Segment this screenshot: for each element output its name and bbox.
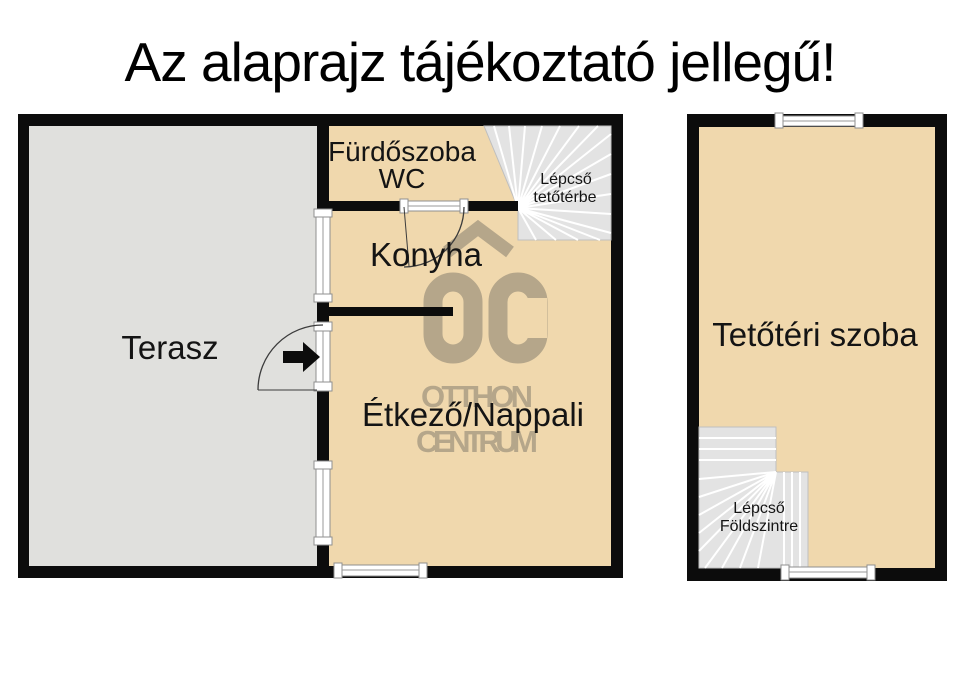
room-label-konyha: Konyha (370, 236, 483, 273)
kitchen-living-wall (329, 307, 453, 316)
attic-floor-plan: Tetőtéri szoba Lépcső Földszintre (687, 113, 947, 581)
bathroom-wall-left (329, 201, 403, 211)
stairs-ground-label-line1: Lépcső (733, 500, 785, 517)
stairs-ground-label-line2: Földszintre (720, 518, 798, 535)
bathroom-wall-right (466, 201, 518, 211)
room-label-wc: WC (379, 163, 426, 194)
ground-floor-plan: OTTHON CENTRUM (18, 114, 623, 578)
stairs-attic-label-line2: tetőtérbe (533, 189, 596, 206)
room-label-tetoteri-szoba: Tetőtéri szoba (712, 316, 918, 353)
floorplan-drawing: OTTHON CENTRUM (0, 0, 960, 679)
window-living-bottom (334, 563, 427, 578)
floorplan-page: Az alaprajz tájékoztató jellegű! OTTHON … (0, 0, 960, 679)
stairs-attic-label-line1: Lépcső (540, 171, 592, 188)
window-terrace-upper (314, 209, 332, 302)
window-attic-bottom (781, 565, 875, 580)
room-label-terasz: Terasz (121, 329, 218, 366)
room-label-etkezo-nappali: Étkező/Nappali (362, 396, 584, 433)
watermark-c-gap (519, 298, 547, 338)
window-terrace-lower (314, 461, 332, 545)
